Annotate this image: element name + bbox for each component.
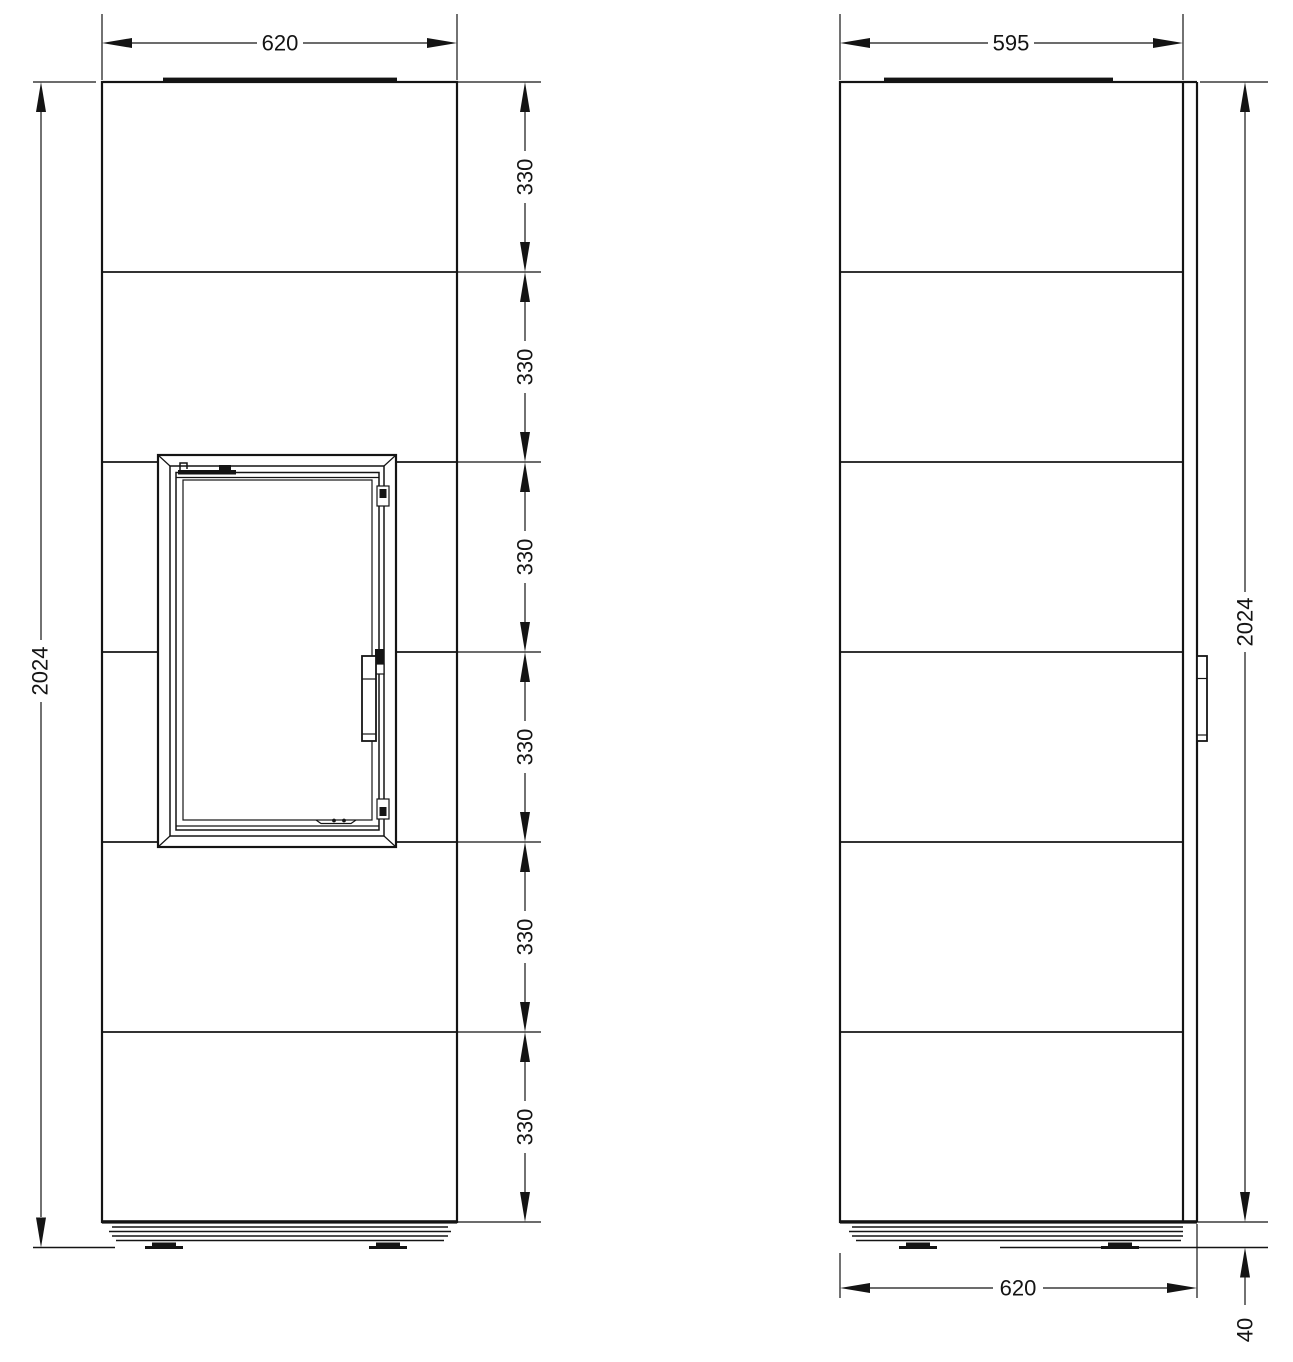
dim-label-base-height: 40	[1233, 1318, 1258, 1342]
arrowhead	[427, 38, 457, 48]
door-top-latch-block	[219, 465, 231, 471]
arrowhead	[36, 1218, 46, 1248]
dim-label-segment: 330	[513, 539, 538, 576]
dim-label-segment: 330	[513, 729, 538, 766]
dim-label-depth: 595	[993, 31, 1030, 56]
arrowhead	[520, 622, 530, 652]
arrowhead	[520, 1002, 530, 1032]
technical-drawing: 620 2024 330 330 330	[0, 0, 1293, 1362]
arrowhead	[520, 82, 530, 112]
foot-plate	[369, 1246, 407, 1249]
dim-segment-chain: 330 330 330 330 330 330	[457, 82, 541, 1222]
fire-door	[158, 455, 396, 847]
front-view	[33, 78, 457, 1249]
dim-depth: 595	[840, 14, 1183, 80]
arrowhead	[520, 842, 530, 872]
dim-base-height: 40	[1233, 1248, 1258, 1343]
foot-plate	[899, 1246, 937, 1249]
arrowhead	[520, 432, 530, 462]
foot-stem	[906, 1243, 930, 1247]
arrowhead	[520, 1032, 530, 1062]
vent-dot	[332, 819, 336, 823]
foot-stem	[1108, 1243, 1132, 1247]
dim-overall-height-side: 2024	[1197, 82, 1268, 1222]
arrowhead	[1153, 38, 1183, 48]
door-hinge-bottom-pin	[380, 807, 387, 816]
foot-stem	[152, 1243, 176, 1247]
side-door-handle	[1197, 656, 1207, 741]
side-top-plate-edge	[884, 78, 1113, 81]
dim-label-segment: 330	[513, 159, 538, 196]
dim-label-segment: 330	[513, 919, 538, 956]
base-top-edge	[840, 1220, 1197, 1223]
dim-label-segment: 330	[513, 1109, 538, 1146]
dim-label-front-width: 620	[262, 31, 299, 56]
arrowhead	[520, 652, 530, 682]
dim-label-segment: 330	[513, 349, 538, 386]
arrowhead	[102, 38, 132, 48]
dim-label-overall-height: 2024	[28, 647, 53, 696]
dim-overall-height-front: 2024	[28, 82, 97, 1248]
arrowhead	[520, 272, 530, 302]
arrowhead	[1240, 82, 1250, 112]
door-handle	[362, 656, 376, 741]
dim-front-width: 620	[102, 14, 457, 80]
door-hinge-top-pin	[380, 489, 387, 498]
foot-stem	[376, 1243, 400, 1247]
front-top-plate-edge	[163, 78, 397, 81]
side-view	[840, 78, 1268, 1249]
arrowhead	[520, 1192, 530, 1222]
door-handle-profile	[1197, 656, 1207, 741]
dim-label-overall-depth: 620	[1000, 1276, 1037, 1301]
drawing-canvas: 620 2024 330 330 330	[0, 0, 1293, 1362]
door-top-latch-bar	[178, 470, 236, 475]
arrowhead	[840, 1283, 870, 1293]
arrowhead	[36, 82, 46, 112]
arrowhead	[1240, 1192, 1250, 1222]
vent-dot	[342, 819, 346, 823]
arrowhead	[520, 242, 530, 272]
arrowhead	[1167, 1283, 1197, 1293]
arrowhead	[840, 38, 870, 48]
dim-label-overall-height: 2024	[1233, 598, 1258, 647]
arrowhead	[1240, 1248, 1250, 1278]
arrowhead	[520, 462, 530, 492]
base-top-edge	[102, 1220, 457, 1223]
foot-plate	[145, 1246, 183, 1249]
door-glass	[183, 480, 372, 820]
front-base	[33, 1220, 457, 1249]
arrowhead	[520, 812, 530, 842]
side-base	[840, 1220, 1268, 1249]
